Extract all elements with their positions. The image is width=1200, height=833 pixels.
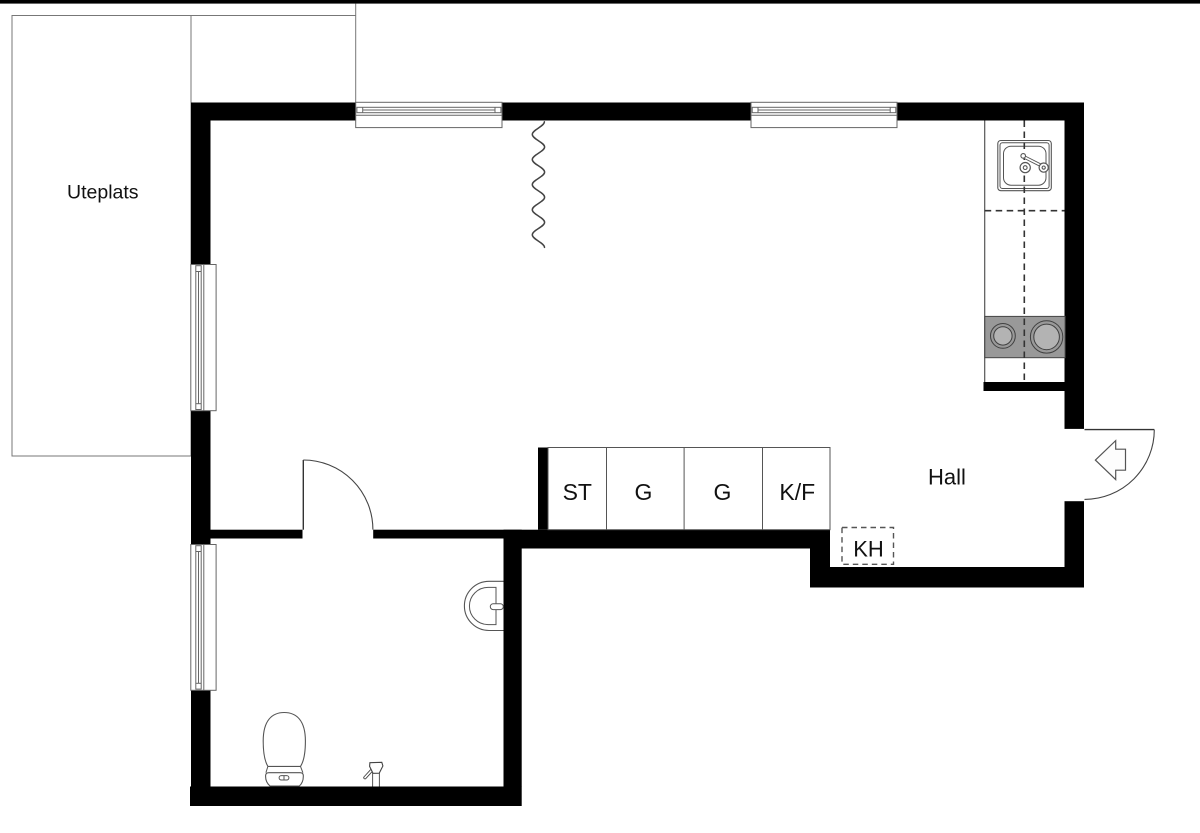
svg-text:G: G <box>635 479 653 505</box>
svg-text:KH: KH <box>853 537 884 562</box>
svg-text:ST: ST <box>563 479 592 505</box>
svg-text:G: G <box>714 479 732 505</box>
svg-text:Hall: Hall <box>928 465 966 490</box>
svg-text:K/F: K/F <box>779 479 815 505</box>
svg-text:Uteplats: Uteplats <box>67 182 139 204</box>
